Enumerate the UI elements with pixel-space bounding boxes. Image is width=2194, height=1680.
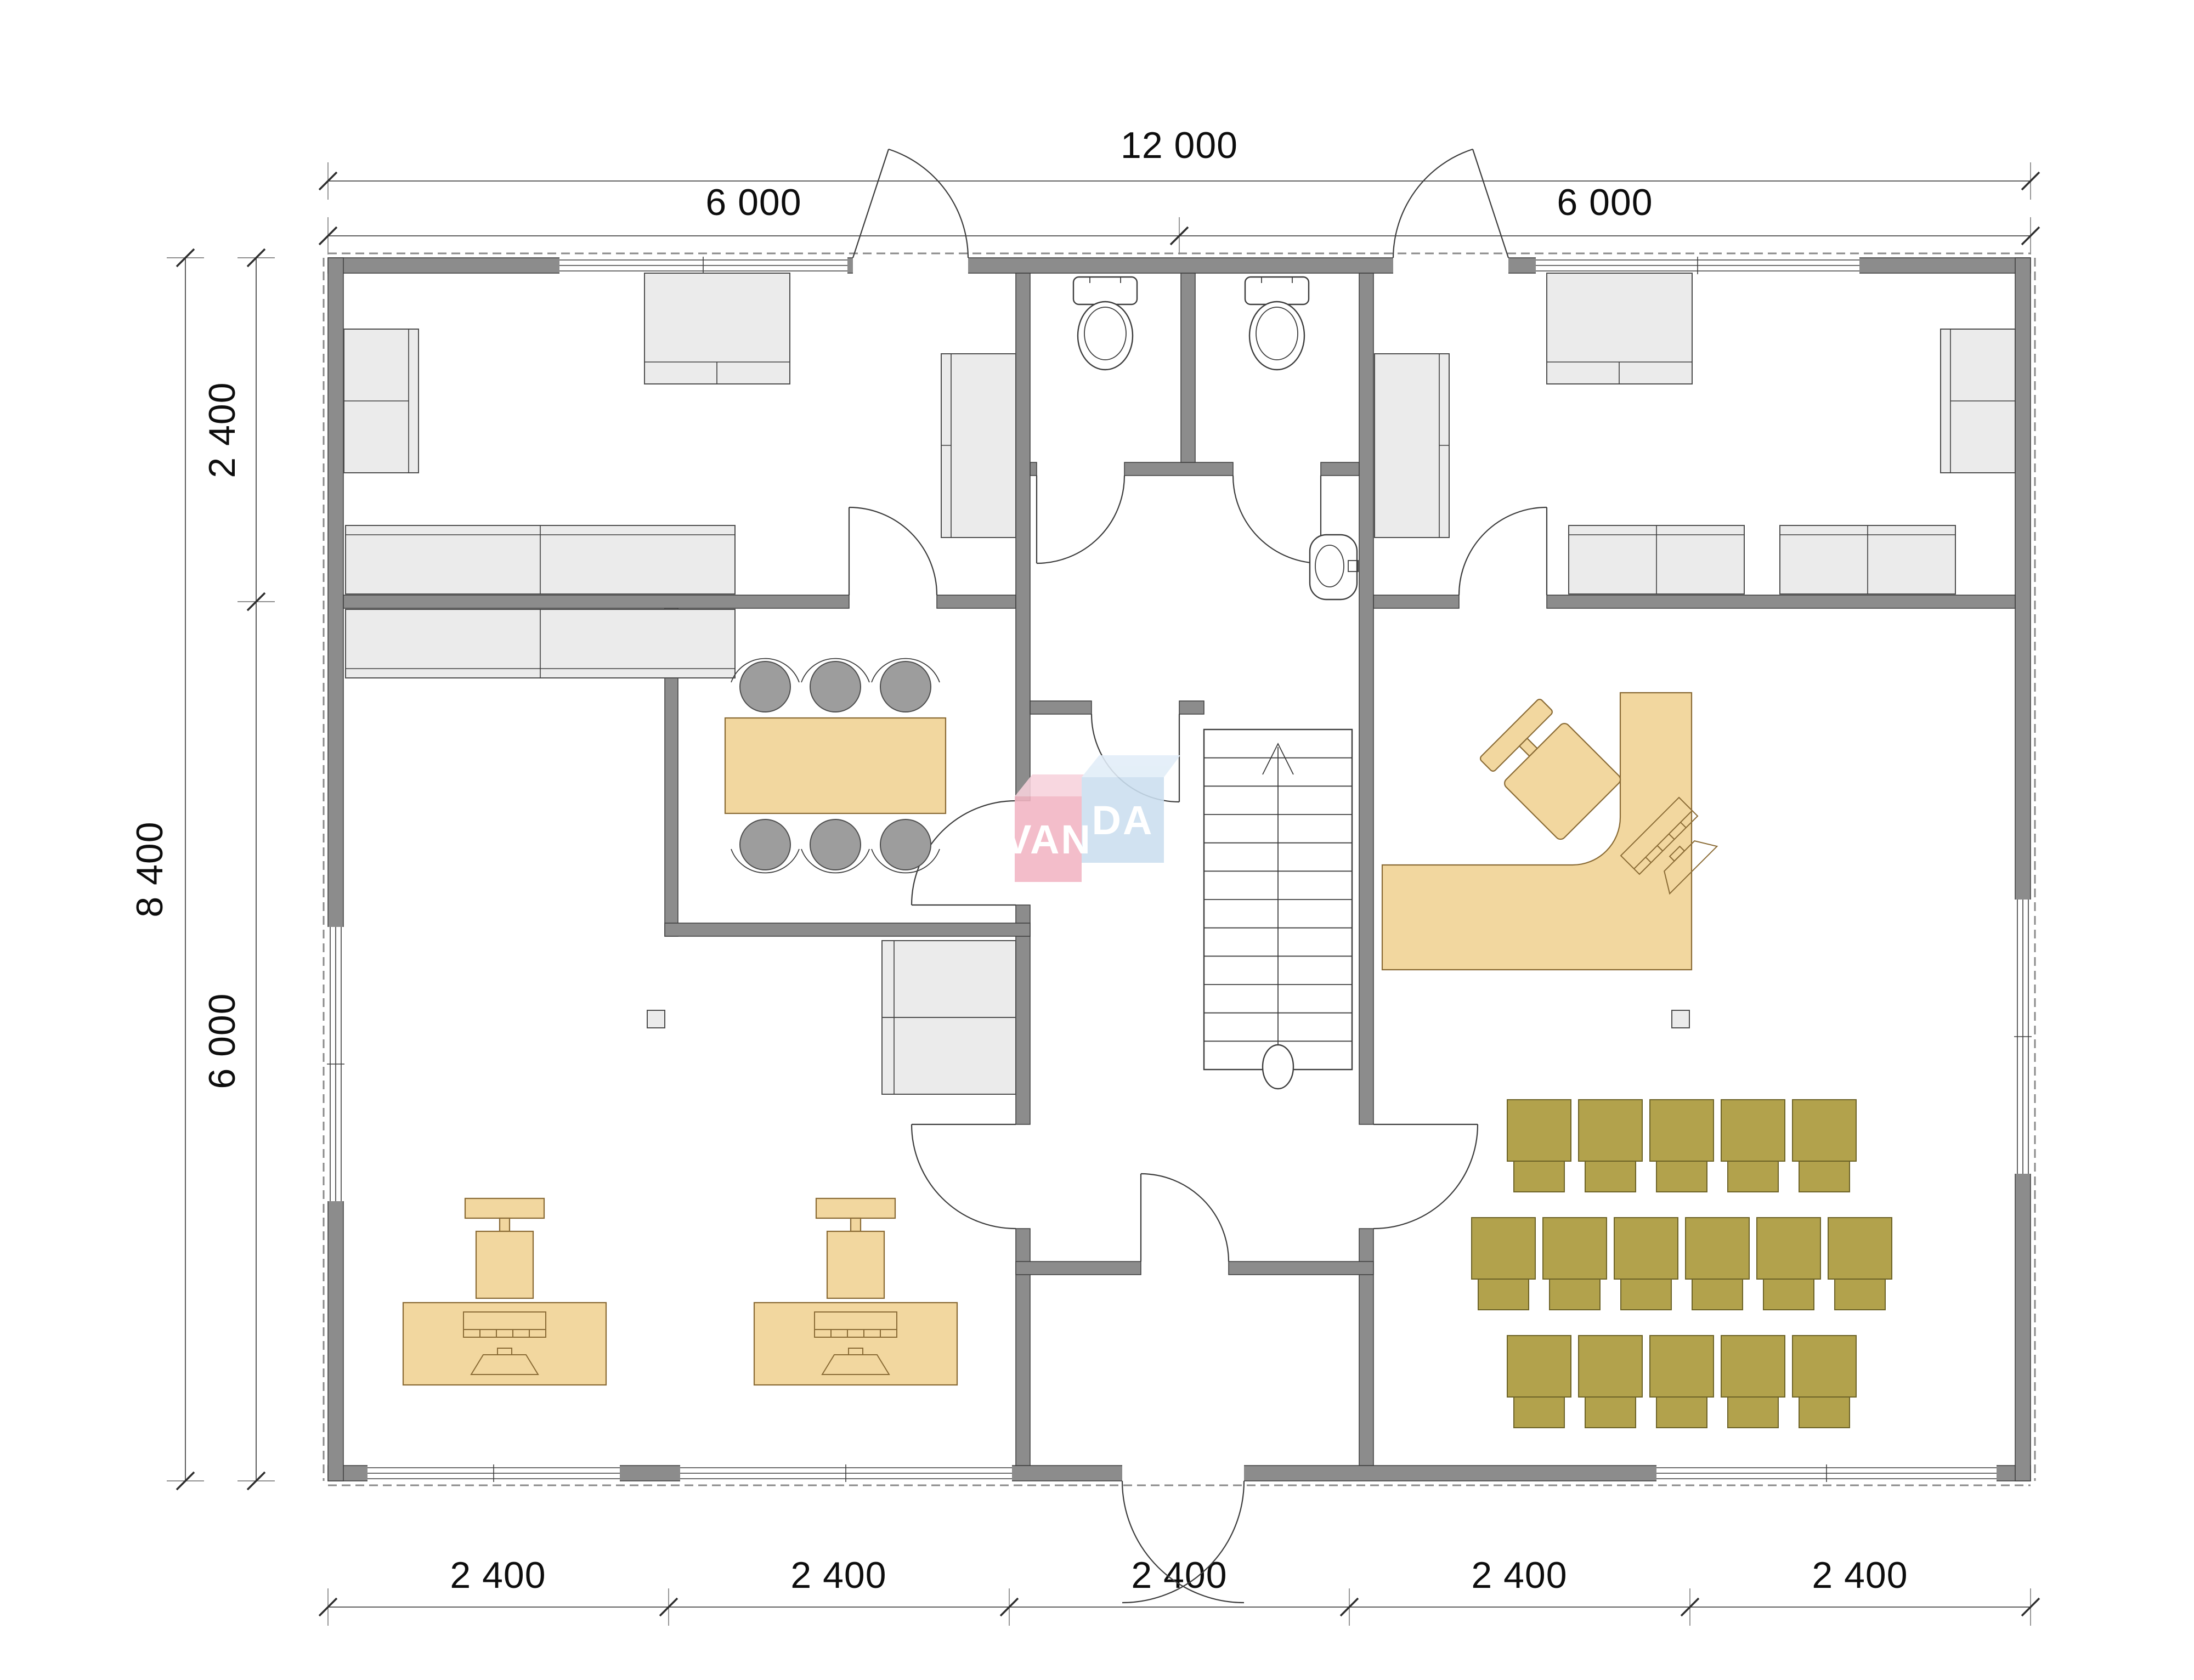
window-bottom-right [1656, 1464, 1997, 1482]
audience-chair-back [1614, 1218, 1678, 1279]
audience-chair-back [1507, 1100, 1571, 1161]
audience-chair-seat [1514, 1397, 1564, 1428]
wall-wc-front-b [1124, 462, 1233, 476]
audience-chair-seat [1656, 1397, 1707, 1428]
chair-seat [827, 1231, 884, 1298]
audience-chair-back [1472, 1218, 1535, 1279]
audience-row [1472, 1218, 1892, 1310]
audience-chair-back [1579, 1336, 1642, 1397]
toilet-icon [1073, 277, 1137, 370]
wall-band-right-b [1547, 595, 2015, 608]
cabinet [1375, 354, 1449, 538]
audience-chair-back [1543, 1218, 1607, 1279]
audience-chair-seat [1656, 1161, 1707, 1192]
workstation [403, 1198, 606, 1385]
dim-label-top-left-half: 6 000 [705, 182, 801, 223]
entry-door-left [853, 149, 968, 258]
fixtures [1073, 277, 1358, 1089]
office-door-right [1459, 507, 1547, 595]
audience-chair-back [1650, 1336, 1714, 1397]
reception-area [1382, 693, 1722, 970]
office-door-left [849, 507, 937, 595]
sink-icon [1310, 535, 1358, 599]
watermark-top-face-right [1082, 755, 1180, 777]
chair-stem [851, 1218, 861, 1231]
wc-door-left [1037, 476, 1124, 563]
desk [754, 1303, 957, 1385]
audience-chair-seat [1692, 1279, 1743, 1310]
meeting-table [725, 718, 946, 813]
window-right-wall [2014, 900, 2032, 1174]
wall-wc-front-c [1321, 462, 1359, 476]
audience-chair-seat [1621, 1279, 1671, 1310]
watermark-text-right: DA [1092, 797, 1154, 843]
vanda-watermark: VAN DA [1004, 755, 1180, 882]
office-chair [1478, 697, 1622, 841]
meeting-chair [810, 661, 861, 712]
office-furniture [344, 273, 2015, 1094]
window-top-right [1536, 257, 1859, 274]
column [1672, 1010, 1689, 1028]
window-left-wall [327, 927, 344, 1201]
audience-chair-back [1507, 1336, 1571, 1397]
dim-label-bottom-5: 2 400 [1812, 1554, 1908, 1596]
audience-chair-back [1579, 1100, 1642, 1161]
main-entrance-opening [1122, 1463, 1244, 1483]
entry-door-opening-left [853, 256, 968, 275]
wall-vestibule-a [1016, 1262, 1141, 1275]
audience-row [1507, 1100, 1856, 1192]
stair-start-mark [1263, 1045, 1293, 1089]
wall-vestibule-b [1229, 1262, 1373, 1275]
audience-chair-seat [1835, 1279, 1885, 1310]
window-bottom-left-2 [680, 1464, 1012, 1482]
exterior-wall-right [2015, 258, 2031, 1481]
audience-chair-seat [1585, 1161, 1636, 1192]
wall-band-left-b [937, 595, 1016, 608]
wall-hall-cross-b [1179, 701, 1204, 714]
cabinet [344, 329, 419, 473]
audience-chair-seat [1728, 1397, 1778, 1428]
dim-label-left-total: 8 400 [129, 821, 171, 917]
meeting-chair [880, 819, 931, 870]
workstation [754, 1198, 957, 1385]
dim-label-bottom-2: 2 400 [790, 1554, 886, 1596]
window-top-left [559, 257, 847, 274]
wall-hall-cross-a [1030, 701, 1092, 714]
chair-seat [476, 1231, 533, 1298]
desk-pair [346, 525, 735, 594]
entry-door-right [1393, 149, 1508, 258]
left-room-door [912, 1124, 1016, 1229]
audience-chair-seat [1763, 1279, 1814, 1310]
audience-chair-back [1650, 1100, 1714, 1161]
wc-door-right [1233, 476, 1321, 563]
wall-spine-upper [1016, 273, 1030, 801]
dim-label-left-top: 2 400 [201, 382, 243, 478]
dim-label-top-right-half: 6 000 [1557, 182, 1653, 223]
meeting-chair [740, 819, 790, 870]
floor-plan-canvas: 12 000 6 000 6 000 8 400 2 400 6 000 2 4… [0, 0, 2194, 1680]
dim-label-bottom-1: 2 400 [450, 1554, 546, 1596]
chair-backrest [465, 1198, 544, 1218]
wall-band-left-a [343, 595, 849, 608]
audience-chair-back [1792, 1336, 1856, 1397]
wall-spine-mid [1016, 905, 1030, 1124]
audience-chair-back [1757, 1218, 1820, 1279]
cabinet [1941, 329, 2015, 473]
audience-chair-seat [1728, 1161, 1778, 1192]
wall-meeting-bottom [665, 923, 1030, 936]
desk [1547, 273, 1692, 384]
dim-label-left-bottom: 6 000 [201, 993, 243, 1089]
toilet-icon [1245, 277, 1309, 370]
audience-chair-back [1721, 1336, 1785, 1397]
vestibule-door [1141, 1174, 1229, 1262]
staircase [1204, 729, 1352, 1089]
wall-wc-partition [1181, 273, 1195, 462]
exterior-wall-left [328, 258, 343, 1481]
meeting-chair [810, 819, 861, 870]
desk-pair [1569, 525, 1744, 594]
desk-pair [1780, 525, 1955, 594]
audience-row [1507, 1336, 1856, 1428]
audience-chair-seat [1550, 1279, 1600, 1310]
storage-cabinets [882, 941, 1016, 1094]
wall-right-spine-upper [1359, 273, 1373, 1124]
cabinet [941, 354, 1016, 538]
entry-door-opening-right [1393, 256, 1508, 275]
dim-label-bottom-3: 2 400 [1131, 1554, 1227, 1596]
chair-stem [500, 1218, 510, 1231]
meeting-chair [740, 661, 790, 712]
desk [644, 273, 790, 384]
wall-wc-front-a [1030, 462, 1037, 476]
desk [403, 1303, 606, 1385]
wall-band-right-a [1373, 595, 1459, 608]
meeting-room-set [725, 659, 946, 873]
desk-pair [346, 609, 735, 678]
window-bottom-left-1 [367, 1464, 620, 1482]
dim-label-bottom-4: 2 400 [1471, 1554, 1567, 1596]
audience-chair-rows [1472, 1100, 1892, 1428]
audience-chair-seat [1799, 1397, 1850, 1428]
chair-backrest [816, 1198, 895, 1218]
audience-chair-back [1721, 1100, 1785, 1161]
audience-chair-seat [1585, 1397, 1636, 1428]
dim-label-top-total: 12 000 [1121, 125, 1238, 166]
meeting-chair [880, 661, 931, 712]
audience-chair-seat [1478, 1279, 1529, 1310]
audience-chair-back [1792, 1100, 1856, 1161]
audience-chair-back [1686, 1218, 1749, 1279]
right-room-door [1373, 1124, 1478, 1229]
column [647, 1010, 665, 1028]
audience-chair-seat [1799, 1161, 1850, 1192]
audience-chair-seat [1514, 1161, 1564, 1192]
workstations [403, 1198, 957, 1385]
audience-chair-back [1828, 1218, 1892, 1279]
watermark-text-left: VAN [1004, 817, 1092, 862]
